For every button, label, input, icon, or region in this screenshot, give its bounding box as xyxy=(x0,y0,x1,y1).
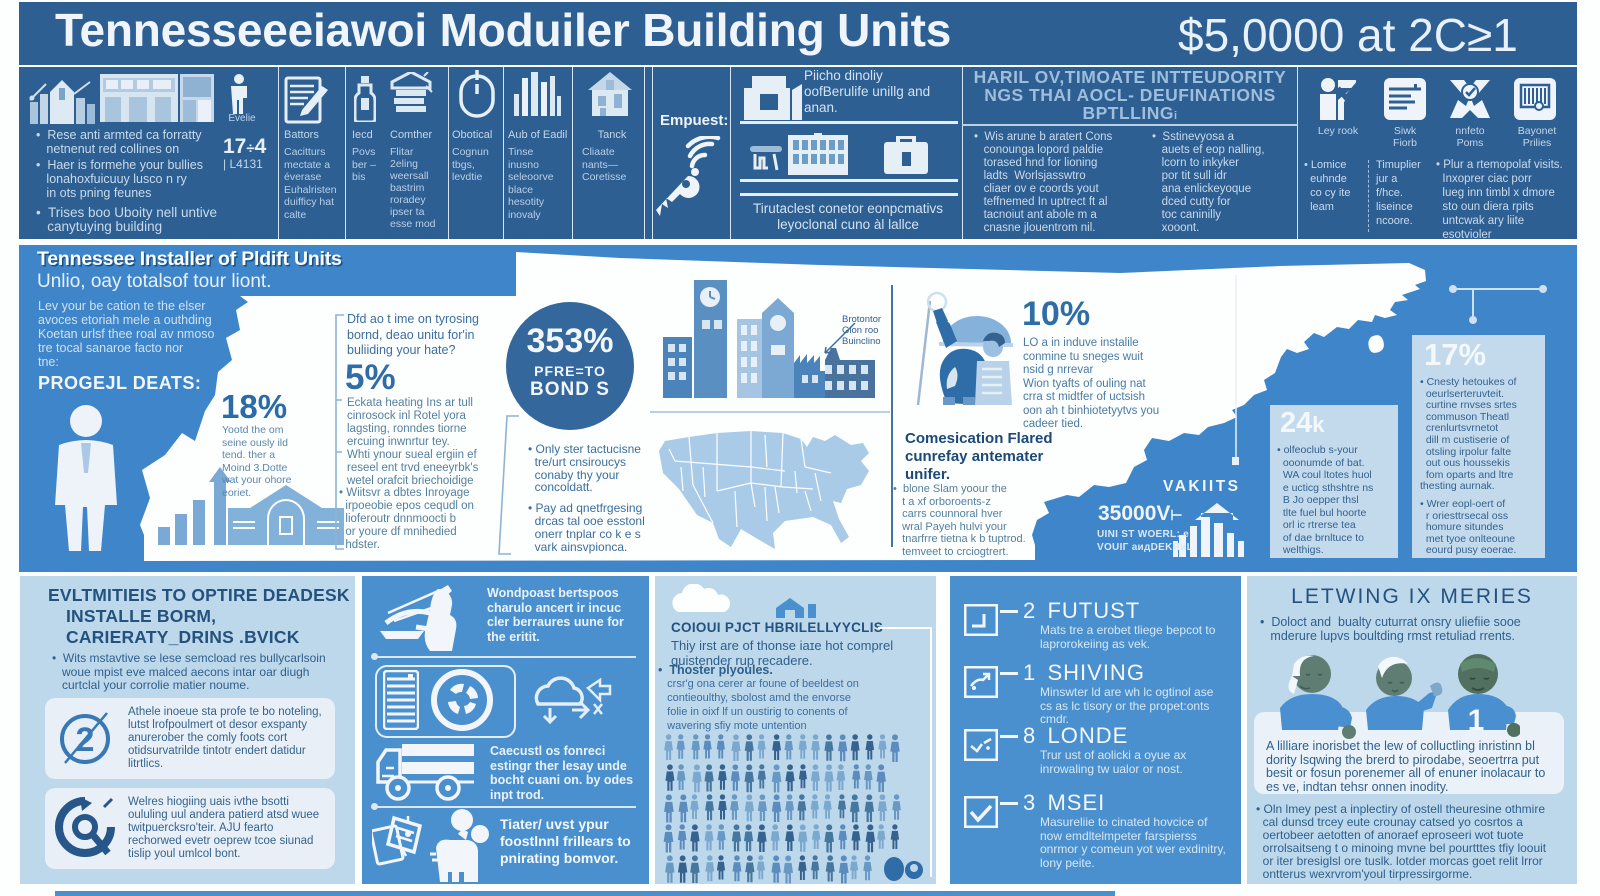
svg-text:1: 1 xyxy=(1468,704,1485,737)
